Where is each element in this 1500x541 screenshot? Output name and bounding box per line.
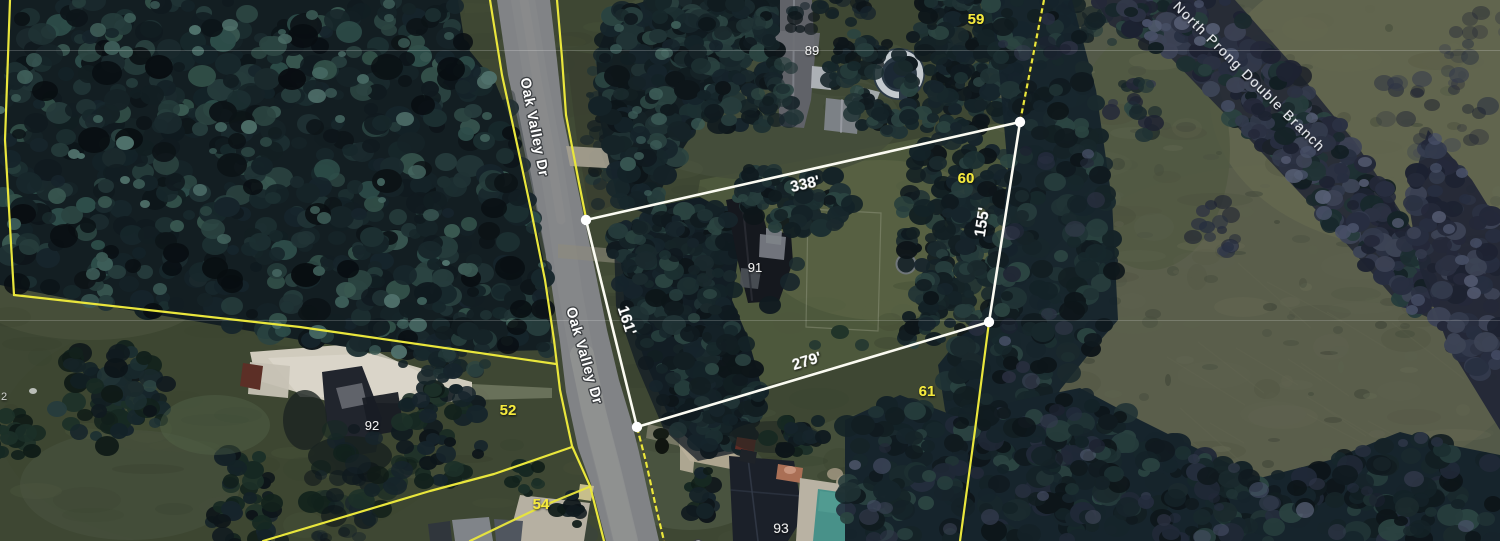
svg-text:92: 92 — [365, 418, 379, 433]
svg-text:91: 91 — [748, 260, 762, 275]
svg-text:2: 2 — [1, 391, 7, 403]
svg-text:60: 60 — [958, 170, 975, 187]
svg-text:59: 59 — [968, 11, 985, 28]
svg-text:52: 52 — [500, 402, 517, 419]
svg-text:89: 89 — [805, 43, 819, 58]
svg-text:61: 61 — [919, 383, 936, 400]
svg-text:54: 54 — [533, 496, 550, 513]
svg-text:93: 93 — [773, 520, 789, 536]
